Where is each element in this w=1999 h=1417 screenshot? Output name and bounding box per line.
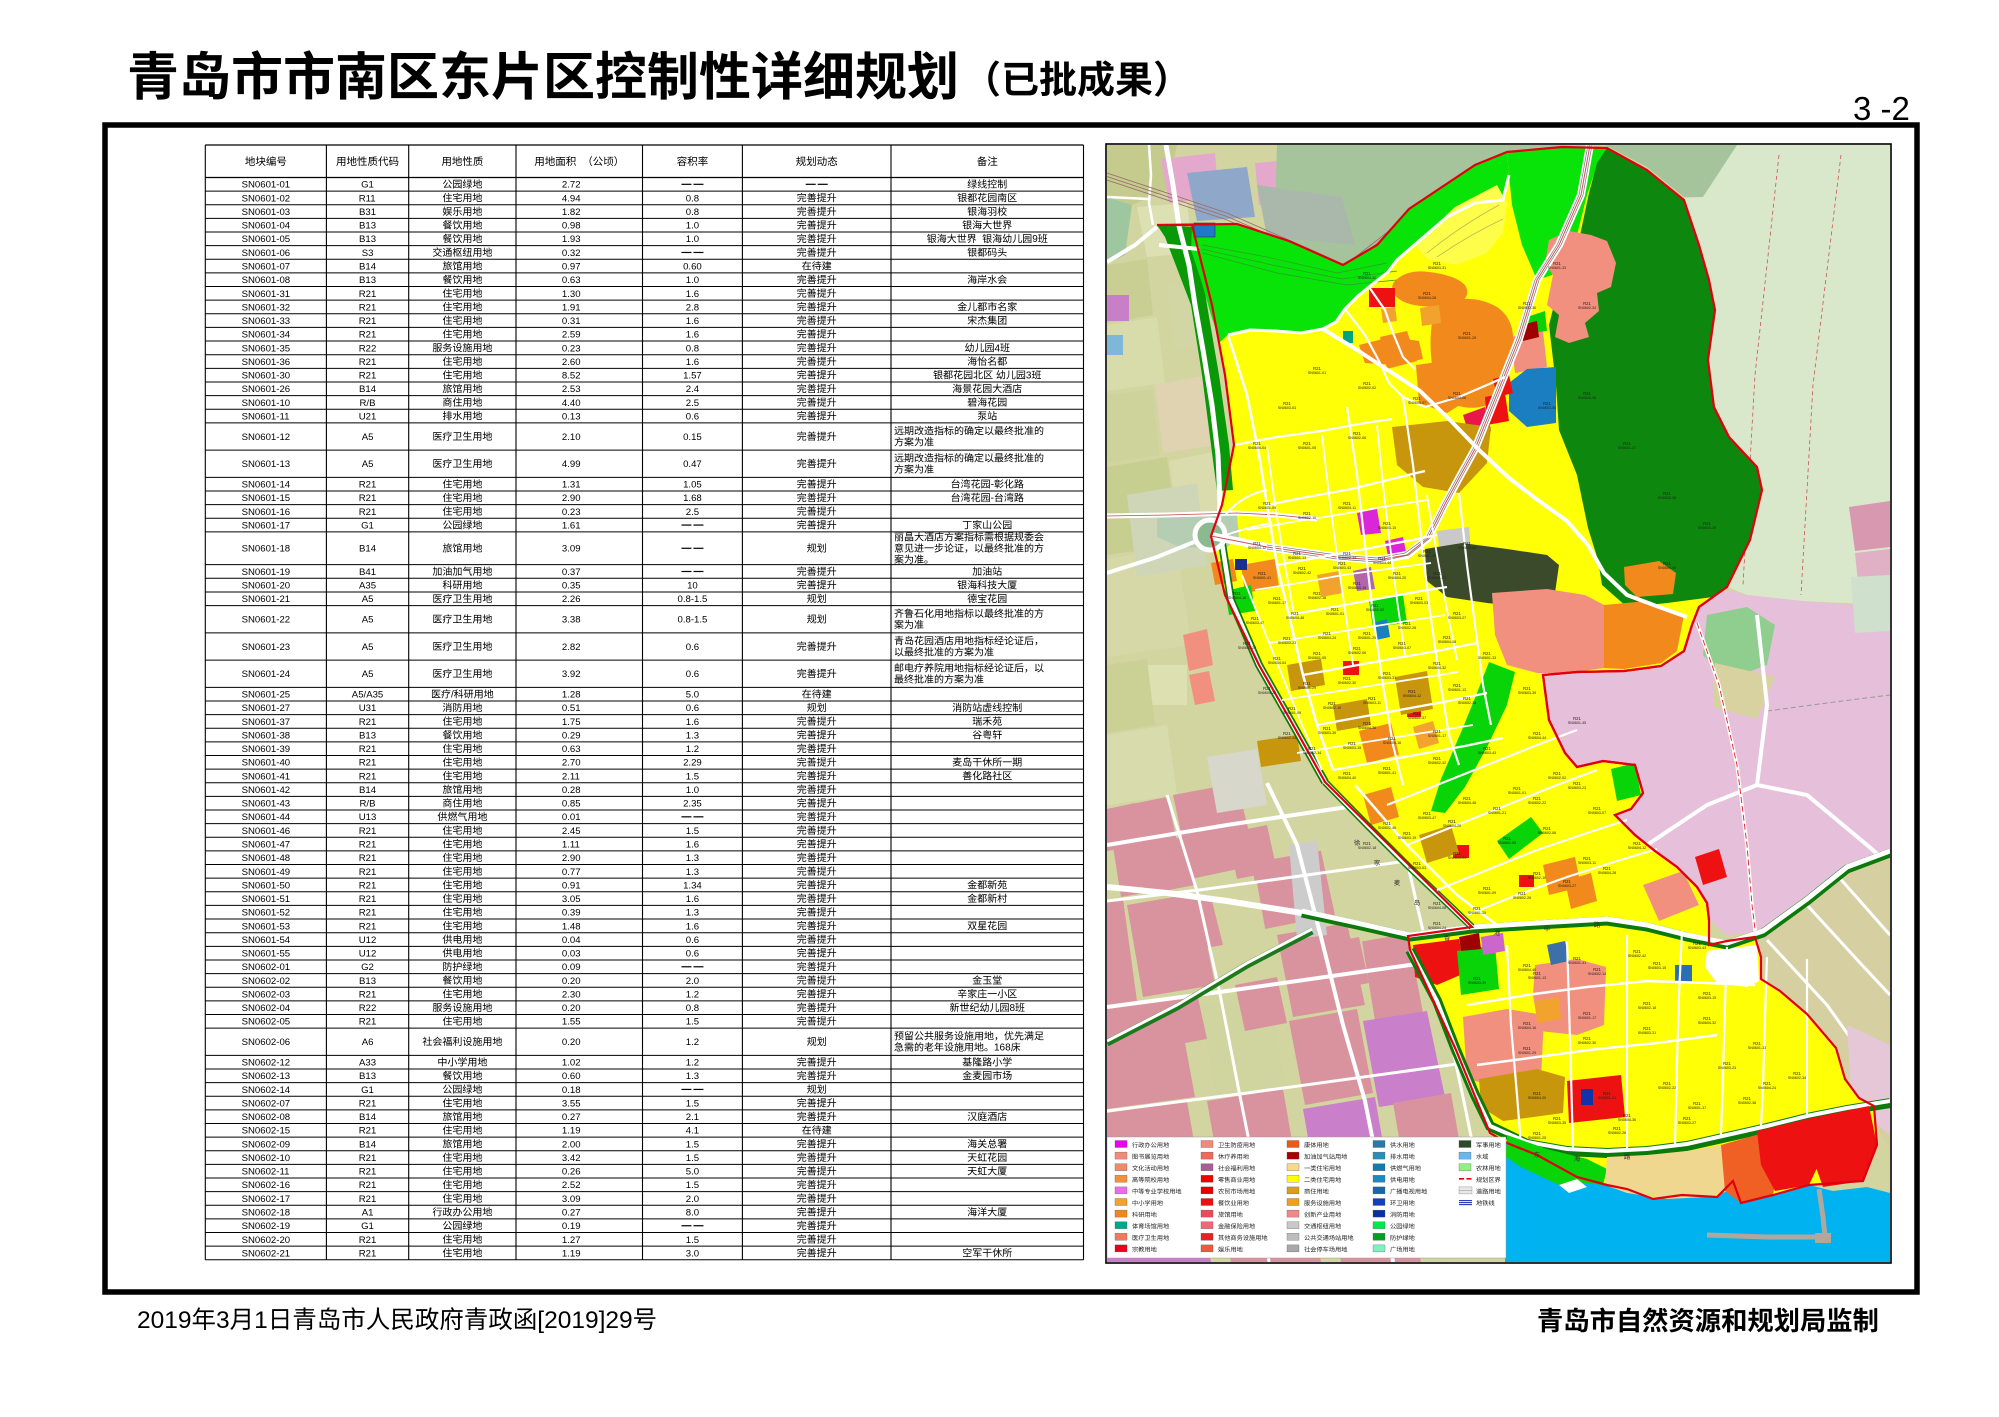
svg-text:1.6: 1.6	[686, 840, 699, 851]
svg-text:[2019]29: [2019]29	[537, 1307, 632, 1334]
svg-text:1.82: 1.82	[562, 207, 581, 218]
svg-text:1.91: 1.91	[562, 302, 581, 313]
svg-text:1.6: 1.6	[686, 330, 699, 341]
svg-text:SN0601-09: SN0601-09	[1478, 891, 1496, 895]
svg-text:SN0604-08: SN0604-08	[1438, 640, 1456, 644]
svg-text:SN0604-08: SN0604-08	[1448, 396, 1466, 400]
svg-text:1.48: 1.48	[562, 921, 581, 932]
svg-text:1.0: 1.0	[686, 785, 699, 796]
svg-text:SN0602-42: SN0602-42	[1428, 761, 1446, 765]
svg-text:SN0602-10: SN0602-10	[242, 1153, 291, 1164]
svg-text:SN0602-22: SN0602-22	[1658, 1086, 1676, 1090]
svg-text:SN0603-07: SN0603-07	[1393, 646, 1411, 650]
svg-text:1.2: 1.2	[686, 744, 699, 755]
svg-text:SN0602-12: SN0602-12	[242, 1058, 291, 1069]
svg-text:A5: A5	[362, 615, 374, 626]
svg-text:SN0601-29: SN0601-29	[1458, 336, 1476, 340]
svg-text:SN0604-32: SN0604-32	[1698, 1021, 1716, 1025]
svg-text:4: 4	[995, 343, 1001, 354]
svg-text:3: 3	[1026, 371, 1032, 382]
svg-text:SN0601-37: SN0601-37	[1688, 1106, 1706, 1110]
svg-text:SN0603-23: SN0603-23	[1278, 641, 1296, 645]
svg-text:5.0: 5.0	[686, 690, 699, 701]
svg-text:SN0601-25: SN0601-25	[1358, 636, 1376, 640]
svg-text:SN0602-01: SN0602-01	[242, 962, 291, 973]
svg-text:SN0603-19: SN0603-19	[1698, 996, 1716, 1000]
svg-text:SN0601-25: SN0601-25	[242, 690, 291, 701]
svg-text:0.20: 0.20	[562, 1003, 581, 1014]
svg-text:SN0602-38: SN0602-38	[1458, 701, 1476, 705]
svg-text:SN0601-24: SN0601-24	[242, 669, 291, 680]
svg-text:R21: R21	[359, 867, 377, 878]
svg-text:SN0601-13: SN0601-13	[1288, 556, 1306, 560]
svg-text:0.26: 0.26	[562, 1167, 581, 1178]
svg-text:0.8: 0.8	[686, 1003, 699, 1014]
svg-text:R21: R21	[359, 330, 377, 341]
svg-text:0.77: 0.77	[562, 867, 581, 878]
svg-text:SN0601-21: SN0601-21	[242, 594, 291, 605]
svg-text:SN0601-11: SN0601-11	[242, 411, 290, 422]
svg-text:0.19: 0.19	[562, 1221, 581, 1232]
svg-text:B14: B14	[359, 1112, 377, 1123]
svg-text:SN0602-22: SN0602-22	[1528, 801, 1546, 805]
svg-text:0.63: 0.63	[562, 744, 581, 755]
svg-text:G2: G2	[361, 962, 374, 973]
svg-text:SN0603-15: SN0603-15	[1378, 526, 1396, 530]
svg-text:R21: R21	[359, 1153, 377, 1164]
svg-text:2.0: 2.0	[686, 1194, 699, 1205]
svg-text:SN0601-01: SN0601-01	[1308, 371, 1326, 375]
svg-text:R21: R21	[359, 302, 377, 313]
svg-text:0.23: 0.23	[562, 507, 581, 518]
svg-text:SN0601-13: SN0601-13	[1448, 688, 1466, 692]
svg-text:SN0603-15: SN0603-15	[1648, 966, 1666, 970]
svg-text:0.18: 0.18	[562, 1085, 581, 1096]
svg-text:SN0601-29: SN0601-29	[1518, 1051, 1536, 1055]
svg-text:SN0602-02: SN0602-02	[1358, 386, 1376, 390]
svg-text:SN0602-06: SN0602-06	[242, 1037, 291, 1048]
svg-text:SN0602-10: SN0602-10	[1323, 706, 1341, 710]
svg-text:1.61: 1.61	[562, 521, 581, 532]
svg-text:SN0602-30: SN0602-30	[1578, 1041, 1596, 1045]
svg-text:R21: R21	[359, 744, 377, 755]
svg-text:A5: A5	[362, 432, 374, 443]
svg-text:SN0601-15: SN0601-15	[242, 493, 291, 504]
svg-text:A5: A5	[362, 642, 374, 653]
svg-text:SN0603-39: SN0603-39	[1468, 981, 1486, 985]
svg-text:SN0604-20: SN0604-20	[1443, 824, 1461, 828]
svg-text:SN0601-10: SN0601-10	[242, 398, 291, 409]
svg-text:0.60: 0.60	[683, 262, 702, 273]
svg-text:SN0604-28: SN0604-28	[1418, 296, 1436, 300]
svg-text:SN0604-36: SN0604-36	[1358, 726, 1376, 730]
svg-text:2.4: 2.4	[686, 384, 700, 395]
svg-text:SN0601-01: SN0601-01	[242, 180, 291, 191]
svg-text:SN0602-20: SN0602-20	[242, 1235, 291, 1246]
svg-text:G1: G1	[361, 521, 374, 532]
svg-text:B13: B13	[359, 976, 376, 987]
svg-text:0.29: 0.29	[562, 731, 581, 742]
svg-text:SN0603-15: SN0603-15	[1343, 746, 1361, 750]
svg-text:U21: U21	[359, 411, 377, 422]
svg-text:SN0603-31: SN0603-31	[1638, 1031, 1656, 1035]
svg-text:SN0601-41: SN0601-41	[1568, 961, 1586, 965]
svg-text:SN0602-34: SN0602-34	[1278, 736, 1296, 740]
svg-text:1.5: 1.5	[686, 1017, 699, 1028]
svg-text:1.19: 1.19	[562, 1248, 581, 1259]
svg-text:B14: B14	[359, 1139, 377, 1150]
svg-text:0.09: 0.09	[562, 962, 581, 973]
svg-text:R21: R21	[359, 1126, 377, 1137]
svg-text:2.72: 2.72	[562, 180, 581, 191]
svg-text:R11: R11	[359, 193, 376, 204]
svg-text:SN0602-02: SN0602-02	[1548, 776, 1566, 780]
svg-text:1.27: 1.27	[562, 1235, 581, 1246]
svg-text:SN0603-11: SN0603-11	[1363, 701, 1381, 705]
svg-text:SN0601-27: SN0601-27	[242, 703, 291, 714]
svg-text:SN0604-48: SN0604-48	[1286, 616, 1304, 620]
svg-text:R21: R21	[359, 1180, 377, 1191]
svg-text:R21: R21	[359, 1017, 377, 1028]
svg-text:2.45: 2.45	[562, 826, 581, 837]
svg-text:SN0601-43: SN0601-43	[242, 799, 291, 810]
svg-text:SN0602-06: SN0602-06	[1538, 831, 1556, 835]
svg-text:SN0601-53: SN0601-53	[242, 921, 291, 932]
svg-text:SN0604-36: SN0604-36	[1578, 396, 1596, 400]
svg-text:5.0: 5.0	[686, 1167, 699, 1178]
svg-text:SN0602-09: SN0602-09	[242, 1139, 291, 1150]
svg-text:SN0604-20: SN0604-20	[1528, 1096, 1546, 1100]
svg-text:0.01: 0.01	[562, 812, 581, 823]
svg-text:0.47: 0.47	[683, 459, 702, 470]
svg-text:SN0601-05: SN0601-05	[1308, 656, 1326, 660]
svg-text:1.30: 1.30	[562, 289, 581, 300]
svg-text:SN0604-44: SN0604-44	[1373, 561, 1391, 565]
svg-text:B14: B14	[359, 785, 377, 796]
svg-text:R21: R21	[359, 921, 377, 932]
svg-text:0.6: 0.6	[686, 935, 699, 946]
svg-text:3: 3	[216, 1307, 230, 1334]
svg-text:2.60: 2.60	[562, 357, 581, 368]
svg-text:SN0601-01: SN0601-01	[1326, 612, 1344, 616]
svg-text:2.35: 2.35	[683, 799, 702, 810]
svg-text:SN0603-47: SN0603-47	[1418, 816, 1436, 820]
svg-text:1.3: 1.3	[686, 731, 699, 742]
svg-text:0.35: 0.35	[562, 581, 581, 592]
svg-text:0.97: 0.97	[562, 262, 581, 273]
svg-text:SN0602-03: SN0602-03	[242, 989, 291, 1000]
svg-text:SN0603-19: SN0603-19	[1348, 586, 1366, 590]
svg-text:0.32: 0.32	[562, 248, 581, 259]
svg-text:3.42: 3.42	[562, 1153, 581, 1164]
svg-text:0.8: 0.8	[686, 193, 699, 204]
svg-text:SN0601-03: SN0601-03	[242, 207, 291, 218]
svg-text:SN0601-46: SN0601-46	[242, 826, 291, 837]
svg-text:SN0601-38: SN0601-38	[242, 731, 291, 742]
svg-text:0.6: 0.6	[686, 669, 699, 680]
svg-text:0.27: 0.27	[562, 1112, 581, 1123]
svg-text:SN0602-02: SN0602-02	[1366, 608, 1384, 612]
svg-text:2.90: 2.90	[562, 853, 581, 864]
svg-text:2.30: 2.30	[562, 989, 581, 1000]
svg-text:R21: R21	[359, 1099, 377, 1110]
svg-text:SN0601-52: SN0601-52	[242, 908, 291, 919]
svg-text:SN0604-40: SN0604-40	[1338, 776, 1356, 780]
svg-text:R21: R21	[359, 1167, 377, 1178]
svg-text:SN0601-40: SN0601-40	[242, 758, 291, 769]
svg-text:2.5: 2.5	[686, 507, 699, 518]
svg-text:SN0601-29: SN0601-29	[1298, 686, 1316, 690]
svg-text:R21: R21	[359, 1235, 377, 1246]
svg-text:SN0601-08: SN0601-08	[242, 275, 291, 286]
svg-text:1.57: 1.57	[683, 371, 702, 382]
svg-text:SN0601-13: SN0601-13	[242, 459, 291, 470]
svg-text:R21: R21	[359, 853, 377, 864]
svg-text:SN0603-43: SN0603-43	[1688, 946, 1706, 950]
svg-text:SN0601-33: SN0601-33	[242, 316, 291, 327]
svg-text:SN0601-37: SN0601-37	[242, 717, 291, 728]
svg-text:SN0601-06: SN0601-06	[242, 248, 291, 259]
svg-text:SN0601-30: SN0601-30	[242, 371, 291, 382]
svg-text:SN0601-33: SN0601-33	[1548, 266, 1566, 270]
svg-text:SN0601-37: SN0601-37	[1408, 716, 1426, 720]
svg-text:SN0601-09: SN0601-09	[1283, 711, 1301, 715]
svg-text:SN0604-24: SN0604-24	[1758, 1086, 1776, 1090]
svg-text:SN0603-11: SN0603-11	[1338, 506, 1356, 510]
svg-text:A5: A5	[362, 669, 374, 680]
svg-text:SN0604-04: SN0604-04	[1268, 661, 1286, 665]
svg-text:SN0601-04: SN0601-04	[242, 221, 291, 232]
svg-text:SN0603-19: SN0603-19	[1398, 836, 1416, 840]
svg-text:1.2: 1.2	[686, 989, 699, 1000]
svg-text:SN0603-03: SN0603-03	[1278, 406, 1296, 410]
svg-text:2.00: 2.00	[562, 1139, 581, 1150]
svg-text:SN0602-14: SN0602-14	[1338, 556, 1356, 560]
svg-text:1.6: 1.6	[686, 717, 699, 728]
svg-text:SN0604-04: SN0604-04	[1248, 446, 1266, 450]
svg-text:SN0604-20: SN0604-20	[1388, 576, 1406, 580]
svg-text:0.51: 0.51	[562, 703, 581, 714]
svg-text:SN0603-07: SN0603-07	[1408, 401, 1426, 405]
svg-text:1.2: 1.2	[686, 1037, 699, 1048]
svg-text:R21: R21	[359, 894, 377, 905]
svg-text:A35: A35	[359, 581, 376, 592]
svg-text:2.59: 2.59	[562, 330, 581, 341]
svg-text:1.5: 1.5	[686, 826, 699, 837]
svg-text:SN0603-07: SN0603-07	[1588, 811, 1606, 815]
svg-text:A5/A35: A5/A35	[352, 690, 383, 701]
svg-text:0.03: 0.03	[562, 949, 581, 960]
svg-text:SN0602-46: SN0602-46	[1378, 826, 1396, 830]
svg-text:SN0601-51: SN0601-51	[242, 894, 291, 905]
svg-text:0.8: 0.8	[686, 207, 699, 218]
svg-text:SN0601-16: SN0601-16	[242, 507, 291, 518]
svg-text:2.82: 2.82	[562, 642, 581, 653]
svg-text:R21: R21	[359, 371, 377, 382]
svg-text:0.91: 0.91	[562, 880, 581, 891]
svg-text:SN0601-41: SN0601-41	[1253, 576, 1271, 580]
svg-text:SN0604-44: SN0604-44	[1528, 736, 1546, 740]
svg-text:SN0601-33: SN0601-33	[1478, 656, 1496, 660]
svg-text:SN0601-32: SN0601-32	[242, 302, 291, 313]
svg-text:A1: A1	[362, 1208, 374, 1219]
svg-text:SN0602-06: SN0602-06	[1348, 436, 1366, 440]
svg-text:0.20: 0.20	[562, 1037, 581, 1048]
svg-text:10: 10	[687, 581, 698, 592]
svg-text:B31: B31	[359, 207, 376, 218]
svg-text:1.0: 1.0	[686, 221, 699, 232]
svg-text:0.8: 0.8	[686, 343, 699, 354]
svg-text:1.31: 1.31	[562, 480, 581, 491]
svg-text:1.5: 1.5	[686, 1235, 699, 1246]
svg-text:1.5: 1.5	[686, 1099, 699, 1110]
svg-text:SN0602-30: SN0602-30	[1518, 306, 1536, 310]
svg-text:SN0601-05: SN0601-05	[242, 234, 291, 245]
svg-text:R21: R21	[359, 316, 377, 327]
svg-text:SN0602-14: SN0602-14	[242, 1085, 291, 1096]
svg-text:2.8: 2.8	[686, 302, 699, 313]
svg-text:SN0604-28: SN0604-28	[1258, 691, 1276, 695]
svg-text:SN0602-38: SN0602-38	[1738, 1101, 1756, 1105]
svg-text:SN0602-15: SN0602-15	[242, 1126, 291, 1137]
svg-text:SN0601-02: SN0601-02	[242, 193, 291, 204]
svg-text:SN0601-54: SN0601-54	[242, 935, 291, 946]
svg-text:R21: R21	[359, 880, 377, 891]
svg-text:SN0601-26: SN0601-26	[242, 384, 291, 395]
svg-text:168: 168	[994, 1043, 1011, 1054]
svg-text:G1: G1	[361, 180, 374, 191]
svg-text:SN0603-03: SN0603-03	[1408, 866, 1426, 870]
svg-text:R21: R21	[359, 840, 377, 851]
svg-text:SN0603-31: SN0603-31	[1378, 676, 1396, 680]
svg-text:SN0601-31: SN0601-31	[242, 289, 291, 300]
svg-text:1.2: 1.2	[686, 1058, 699, 1069]
svg-text:1.28: 1.28	[562, 690, 581, 701]
svg-text:SN0604-12: SN0604-12	[1248, 546, 1266, 550]
svg-text:SN0604-12: SN0604-12	[1403, 694, 1421, 698]
svg-text:SN0602-19: SN0602-19	[242, 1221, 291, 1232]
svg-text:3.55: 3.55	[562, 1099, 581, 1110]
svg-text:0.8-1.5: 0.8-1.5	[678, 594, 708, 605]
svg-text:1.93: 1.93	[562, 234, 581, 245]
svg-text:3.09: 3.09	[562, 1194, 581, 1205]
svg-text:0.6: 0.6	[686, 411, 699, 422]
svg-text:1.5: 1.5	[686, 1139, 699, 1150]
svg-text:1.0: 1.0	[686, 234, 699, 245]
svg-text:SN0604-08: SN0604-08	[1428, 906, 1446, 910]
svg-text:SN0601-17: SN0601-17	[1428, 734, 1446, 738]
svg-text:A5: A5	[362, 459, 374, 470]
svg-text:0.37: 0.37	[562, 567, 581, 578]
svg-text:0.63: 0.63	[562, 275, 581, 286]
svg-text:8: 8	[1010, 1003, 1016, 1014]
svg-text:SN0601-05: SN0601-05	[1298, 446, 1316, 450]
svg-text:1.75: 1.75	[562, 717, 581, 728]
svg-text:1.34: 1.34	[683, 880, 702, 891]
svg-text:SN0602-42: SN0602-42	[1628, 954, 1646, 958]
svg-text:SN0601-45: SN0601-45	[1418, 554, 1436, 558]
svg-text:R21: R21	[359, 771, 377, 782]
svg-text:SN0602-30: SN0602-30	[1338, 681, 1356, 685]
svg-text:SN0601-17: SN0601-17	[242, 521, 291, 532]
svg-text:R21: R21	[359, 507, 377, 518]
svg-text:SN0602-18: SN0602-18	[1638, 1006, 1656, 1010]
svg-text:R22: R22	[359, 1003, 377, 1014]
svg-text:SN0601-25: SN0601-25	[1468, 911, 1486, 915]
svg-text:-: -	[991, 493, 994, 504]
svg-text:SN0601-36: SN0601-36	[242, 357, 291, 368]
svg-text:0.39: 0.39	[562, 908, 581, 919]
svg-text:R21: R21	[359, 1248, 377, 1259]
svg-text:0.85: 0.85	[562, 799, 581, 810]
svg-text:SN0601-45: SN0601-45	[1568, 721, 1586, 725]
svg-text:SN0602-13: SN0602-13	[242, 1071, 291, 1082]
svg-text:-: -	[991, 480, 994, 491]
svg-text:SN0601-48: SN0601-48	[242, 853, 291, 864]
svg-text:1.5: 1.5	[686, 771, 699, 782]
svg-text:SN0602-46: SN0602-46	[1458, 546, 1476, 550]
svg-text:SN0603-39: SN0603-39	[1518, 691, 1536, 695]
svg-text:SN0603-39: SN0603-39	[1698, 526, 1716, 530]
svg-text:S3: S3	[362, 248, 374, 259]
svg-text:0.31: 0.31	[562, 316, 581, 327]
svg-text:SN0601-07: SN0601-07	[242, 262, 291, 273]
svg-text:SN0601-44: SN0601-44	[242, 812, 291, 823]
svg-text:SN0601-18: SN0601-18	[242, 544, 291, 555]
svg-text:SN0601-49: SN0601-49	[242, 867, 291, 878]
svg-text:SN0603-31: SN0603-31	[1428, 266, 1446, 270]
svg-text:1.6: 1.6	[686, 357, 699, 368]
svg-text:B41: B41	[359, 567, 376, 578]
svg-text:1.6: 1.6	[686, 894, 699, 905]
svg-text:SN0604-16: SN0604-16	[1383, 741, 1401, 745]
svg-text:B13: B13	[359, 731, 376, 742]
svg-text:SN0602-06: SN0602-06	[1348, 651, 1366, 655]
svg-text:0.23: 0.23	[562, 343, 581, 354]
svg-text:2.26: 2.26	[562, 594, 581, 605]
svg-text:SN0602-10: SN0602-10	[1528, 876, 1546, 880]
svg-text:1.6: 1.6	[686, 921, 699, 932]
svg-text:1.0: 1.0	[686, 275, 699, 286]
svg-text:2.1: 2.1	[686, 1112, 699, 1123]
svg-text:B13: B13	[359, 221, 376, 232]
svg-text:SN0602-18: SN0602-18	[1358, 846, 1376, 850]
svg-text:SN0602-22: SN0602-22	[1238, 646, 1256, 650]
svg-text:R21: R21	[359, 289, 377, 300]
svg-text:0.6: 0.6	[686, 642, 699, 653]
svg-text:SN0601-09: SN0601-09	[1258, 506, 1276, 510]
svg-text:SN0601-23: SN0601-23	[242, 642, 291, 653]
svg-text:R21: R21	[359, 1194, 377, 1205]
svg-text:1.05: 1.05	[683, 480, 702, 491]
svg-text:SN0601-21: SN0601-21	[1488, 811, 1506, 815]
svg-text:U13: U13	[359, 812, 377, 823]
svg-text:2.52: 2.52	[562, 1180, 581, 1191]
svg-text:SN0604-32: SN0604-32	[1428, 666, 1446, 670]
svg-text:B14: B14	[359, 262, 377, 273]
svg-text:G1: G1	[361, 1221, 374, 1232]
svg-text:SN0604-24: SN0604-24	[1318, 636, 1336, 640]
svg-text:0.6: 0.6	[686, 949, 699, 960]
svg-text:SN0603-35: SN0603-35	[1318, 731, 1336, 735]
svg-text:SN0602-26: SN0602-26	[1398, 626, 1416, 630]
svg-text:R21: R21	[359, 357, 377, 368]
svg-text:0.28: 0.28	[562, 785, 581, 796]
svg-text:SN0601-37: SN0601-37	[1618, 446, 1636, 450]
svg-text:SN0603-27: SN0603-27	[1558, 884, 1576, 888]
svg-text:1.02: 1.02	[562, 1058, 581, 1069]
svg-text:2.53: 2.53	[562, 384, 581, 395]
